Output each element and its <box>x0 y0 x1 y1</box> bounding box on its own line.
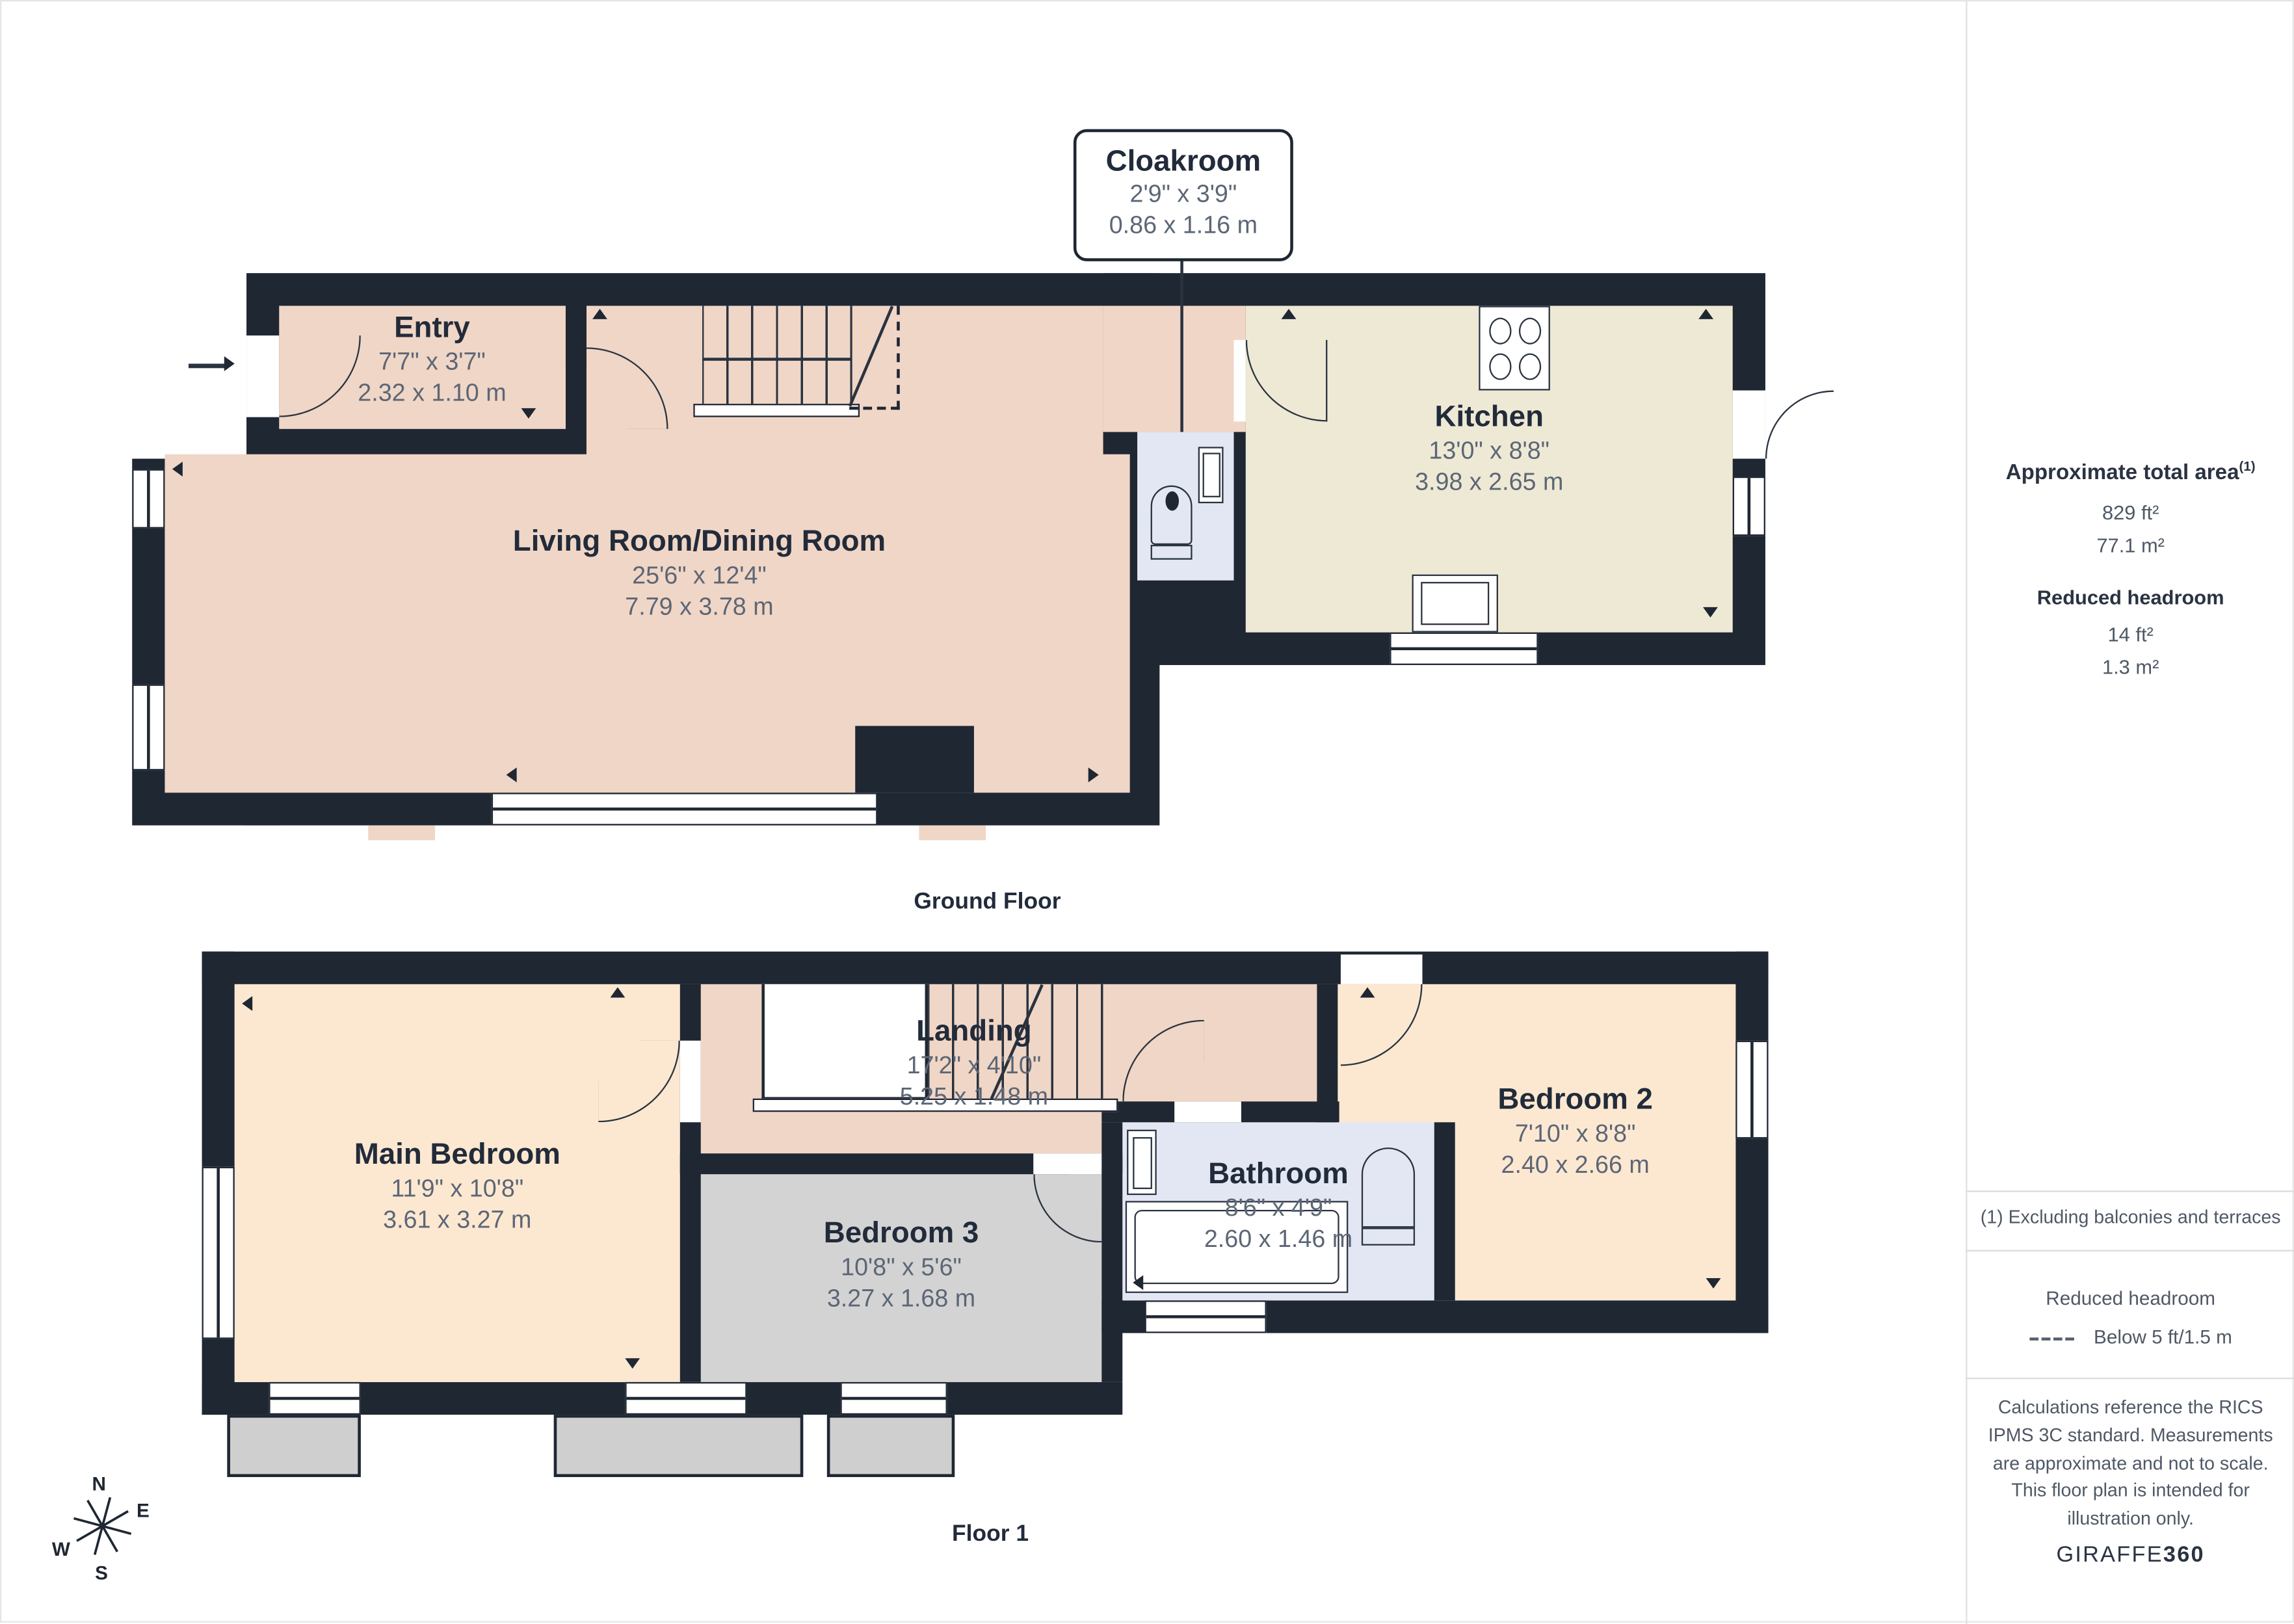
callout-title: Cloakroom <box>1085 144 1281 179</box>
measure-arrow <box>592 309 607 319</box>
area-m: 77.1 m² <box>1968 534 2294 557</box>
window-mullion <box>1146 1316 1265 1318</box>
measure-arrow <box>507 768 517 783</box>
wall <box>1317 984 1338 1122</box>
reduced-headroom-line <box>897 306 900 410</box>
window <box>1390 633 1538 665</box>
compass-n: N <box>92 1474 106 1495</box>
window <box>202 1167 235 1339</box>
sink-basin <box>1203 452 1220 497</box>
door-opening <box>1033 1153 1101 1174</box>
footnote-text: (1) Excluding balconies and terraces <box>1968 1207 2294 1227</box>
sidebar-divider <box>1966 1378 2294 1379</box>
reduced-headroom-heading: Reduced headroom <box>1968 586 2294 609</box>
entrance-arrow-icon <box>189 363 227 367</box>
room-label-landing: Landing 17'2" x 4'10" 5.25 x 1.48 m <box>788 1014 1159 1115</box>
window-mullion <box>493 808 876 810</box>
room-label-entry: Entry 7'7" x 3'7" 2.32 x 1.10 m <box>283 310 581 411</box>
dashed-line-icon <box>2029 1337 2074 1340</box>
toilet-icon <box>1151 486 1193 545</box>
toilet-tank <box>1151 545 1193 560</box>
measure-arrow <box>1706 1278 1721 1289</box>
room-label-bedroom-3: Bedroom 3 10'8" x 5'6" 3.27 x 1.68 m <box>716 1216 1087 1316</box>
measure-arrow <box>610 987 625 997</box>
window <box>625 1382 746 1415</box>
window-mullion <box>270 1398 360 1400</box>
window <box>840 1382 947 1415</box>
callout-dims-imperial: 2'9" x 3'9" <box>1085 179 1281 211</box>
sidebar-divider <box>1966 1190 2294 1192</box>
compass-w: W <box>52 1539 70 1560</box>
legend-row: Below 5 ft/1.5 m <box>1968 1326 2294 1348</box>
footnote-marker: (1) <box>2239 459 2256 474</box>
stove-icon <box>1479 306 1550 390</box>
dormer <box>554 1415 804 1477</box>
measure-arrow <box>1703 607 1718 618</box>
floor-1-caption: Floor 1 <box>842 1521 1139 1548</box>
door-opening <box>1733 391 1765 459</box>
window <box>492 792 878 825</box>
door-opening <box>680 1041 701 1123</box>
window <box>1733 477 1765 536</box>
dormer <box>227 1415 361 1477</box>
room-label-kitchen: Kitchen 13'0" x 8'8" 3.98 x 2.65 m <box>1304 399 1675 500</box>
window-mullion <box>627 1398 746 1400</box>
compass-s: S <box>95 1563 108 1584</box>
sink-icon <box>1198 447 1224 503</box>
floor-plan-page: Cloakroom 2'9" x 3'9" 0.86 x 1.16 m Entr… <box>0 0 2294 1623</box>
compass-icon: N E W S <box>43 1463 169 1590</box>
window-mullion <box>217 1168 219 1337</box>
door-opening <box>1341 954 1423 984</box>
reduced-m: 1.3 m² <box>1968 656 2294 678</box>
bay-pillar <box>368 826 435 841</box>
callout-dims-metric: 0.86 x 1.16 m <box>1085 211 1281 243</box>
giraffe360-logo: GIRAFFE360 <box>1968 1542 2294 1567</box>
window <box>1145 1300 1267 1333</box>
window <box>132 469 165 529</box>
bay-pillar <box>919 826 986 841</box>
burner-icon <box>1489 353 1511 380</box>
stair-line <box>702 358 850 360</box>
entrance-arrow-icon <box>224 356 235 371</box>
stairs <box>702 306 852 406</box>
hallway-area <box>1103 306 1246 432</box>
burner-icon <box>1519 318 1541 345</box>
measure-arrow <box>625 1358 640 1369</box>
room-label-bedroom-2: Bedroom 2 7'10" x 8'8" 2.40 x 2.66 m <box>1390 1082 1761 1183</box>
burner-icon <box>1489 318 1511 345</box>
legend-label: Below 5 ft/1.5 m <box>2094 1326 2232 1348</box>
disclaimer-text: Calculations reference the RICS IPMS 3C … <box>1982 1394 2279 1533</box>
sidebar-divider <box>1966 1250 2294 1251</box>
measure-arrow <box>1133 1275 1143 1290</box>
area-heading: Approximate total area(1) <box>1968 459 2294 486</box>
window <box>132 685 165 770</box>
window <box>269 1382 361 1415</box>
reduced-ft: 14 ft² <box>1968 623 2294 646</box>
reduced-headroom-line <box>849 407 900 410</box>
chimney-breast <box>855 726 974 793</box>
cloakroom-callout: Cloakroom 2'9" x 3'9" 0.86 x 1.16 m <box>1074 129 1293 261</box>
window-mullion <box>148 686 150 769</box>
dormer <box>827 1415 955 1477</box>
measure-arrow <box>1360 987 1375 997</box>
measure-arrow <box>242 996 252 1011</box>
measure-arrow <box>172 462 183 477</box>
wall <box>279 429 566 450</box>
burner-icon <box>1519 353 1541 380</box>
ground-floor-caption: Ground Floor <box>839 889 1136 916</box>
window-mullion <box>1748 478 1750 534</box>
measure-arrow <box>1282 309 1297 319</box>
room-label-living: Living Room/Dining Room 25'6" x 12'4" 7.… <box>477 524 922 625</box>
area-ft: 829 ft² <box>1968 502 2294 524</box>
door-opening <box>1174 1101 1241 1122</box>
window-mullion <box>148 471 150 527</box>
sink-icon <box>1412 575 1498 633</box>
window-mullion <box>842 1398 946 1400</box>
room-label-main-bedroom: Main Bedroom 11'9" x 10'8" 3.61 x 3.27 m <box>272 1137 643 1238</box>
window-mullion <box>1391 648 1537 649</box>
door-opening <box>1234 340 1246 422</box>
legend-heading: Reduced headroom <box>1968 1287 2294 1309</box>
door-opening <box>246 335 279 417</box>
door-arc <box>1765 391 1834 459</box>
callout-connector <box>1180 257 1182 432</box>
compass-e: E <box>137 1500 150 1522</box>
toilet-flush <box>1165 491 1179 511</box>
sidebar-divider-vertical <box>1966 1 1967 1624</box>
stair-base <box>693 404 860 417</box>
wall <box>202 952 1769 984</box>
measure-arrow <box>1698 309 1713 319</box>
measure-arrow <box>1088 768 1099 783</box>
sink-basin <box>1421 582 1489 625</box>
